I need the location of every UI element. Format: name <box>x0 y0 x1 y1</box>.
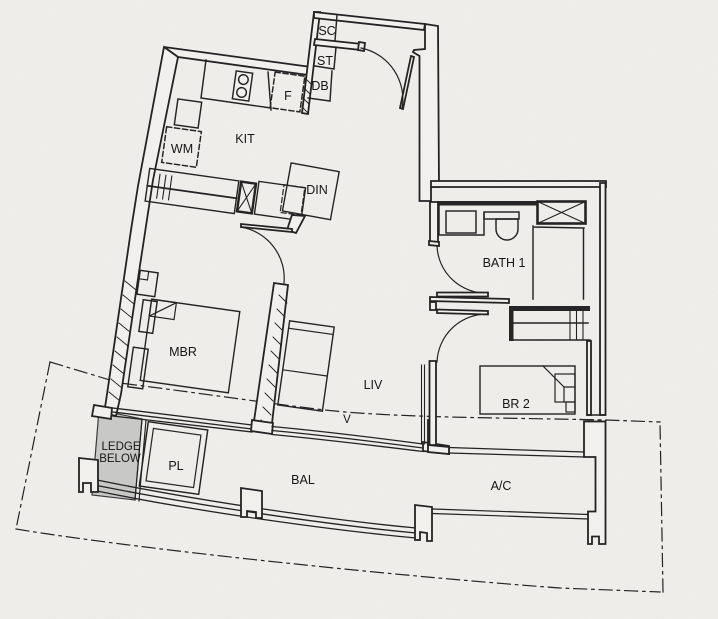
svg-text:F: F <box>284 89 292 103</box>
svg-text:BR 2: BR 2 <box>502 397 530 411</box>
svg-text:LEDGE: LEDGE <box>102 441 141 453</box>
svg-text:BELOW: BELOW <box>99 453 141 465</box>
svg-text:V: V <box>343 414 351 426</box>
svg-text:A/C: A/C <box>491 479 512 493</box>
svg-text:BATH 1: BATH 1 <box>483 256 526 270</box>
svg-text:LIV: LIV <box>364 378 383 392</box>
svg-text:ST: ST <box>317 54 333 68</box>
svg-text:WM: WM <box>171 142 193 156</box>
svg-text:DB: DB <box>311 79 328 93</box>
svg-text:DIN: DIN <box>306 183 328 197</box>
svg-text:BAL: BAL <box>291 473 315 487</box>
svg-text:MBR: MBR <box>169 345 197 359</box>
svg-text:SC: SC <box>318 24 335 38</box>
svg-text:PL: PL <box>168 459 183 473</box>
svg-text:KIT: KIT <box>235 132 255 146</box>
